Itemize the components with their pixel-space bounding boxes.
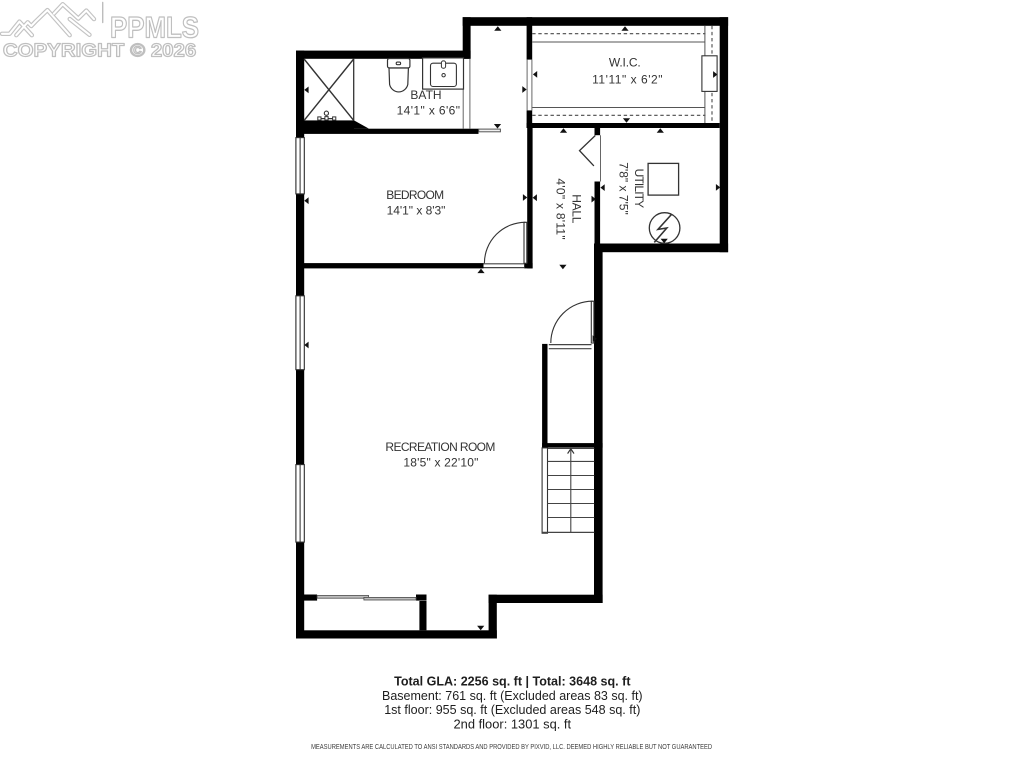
svg-text:2nd floor: 1301 sq. ft: 2nd floor: 1301 sq. ft [454,718,572,732]
svg-text:1st floor: 955 sq. ft (Exclude: 1st floor: 955 sq. ft (Excluded areas 54… [384,703,640,717]
svg-text:UTILITY: UTILITY [632,169,646,209]
svg-text:14'1" x 8'3": 14'1" x 8'3" [387,203,446,217]
svg-text:W.I.C.: W.I.C. [609,55,641,69]
svg-text:RECREATION ROOM: RECREATION ROOM [385,440,495,454]
svg-text:COPYRIGHT © 2026: COPYRIGHT © 2026 [3,39,196,60]
svg-text:7'8" x 7'5": 7'8" x 7'5" [617,162,631,215]
svg-text:Total GLA: 2256 sq. ft | Total: Total GLA: 2256 sq. ft | Total: 3648 sq.… [394,674,631,688]
svg-text:BEDROOM: BEDROOM [386,188,444,202]
svg-text:MEASUREMENTS ARE CALCULATED TO: MEASUREMENTS ARE CALCULATED TO ANSI STAN… [311,742,712,751]
svg-text:18'5" x 22'10": 18'5" x 22'10" [403,455,478,469]
svg-text:Basement: 761 sq. ft (Excluded: Basement: 761 sq. ft (Excluded areas 83 … [382,689,643,703]
svg-text:4'0" x 8'11": 4'0" x 8'11" [554,178,568,239]
svg-text:11'11" x 6'2": 11'11" x 6'2" [592,72,662,86]
svg-text:HALL: HALL [569,194,583,224]
svg-text:BATH: BATH [410,88,441,102]
svg-text:14'1" x 6'6": 14'1" x 6'6" [397,104,460,118]
